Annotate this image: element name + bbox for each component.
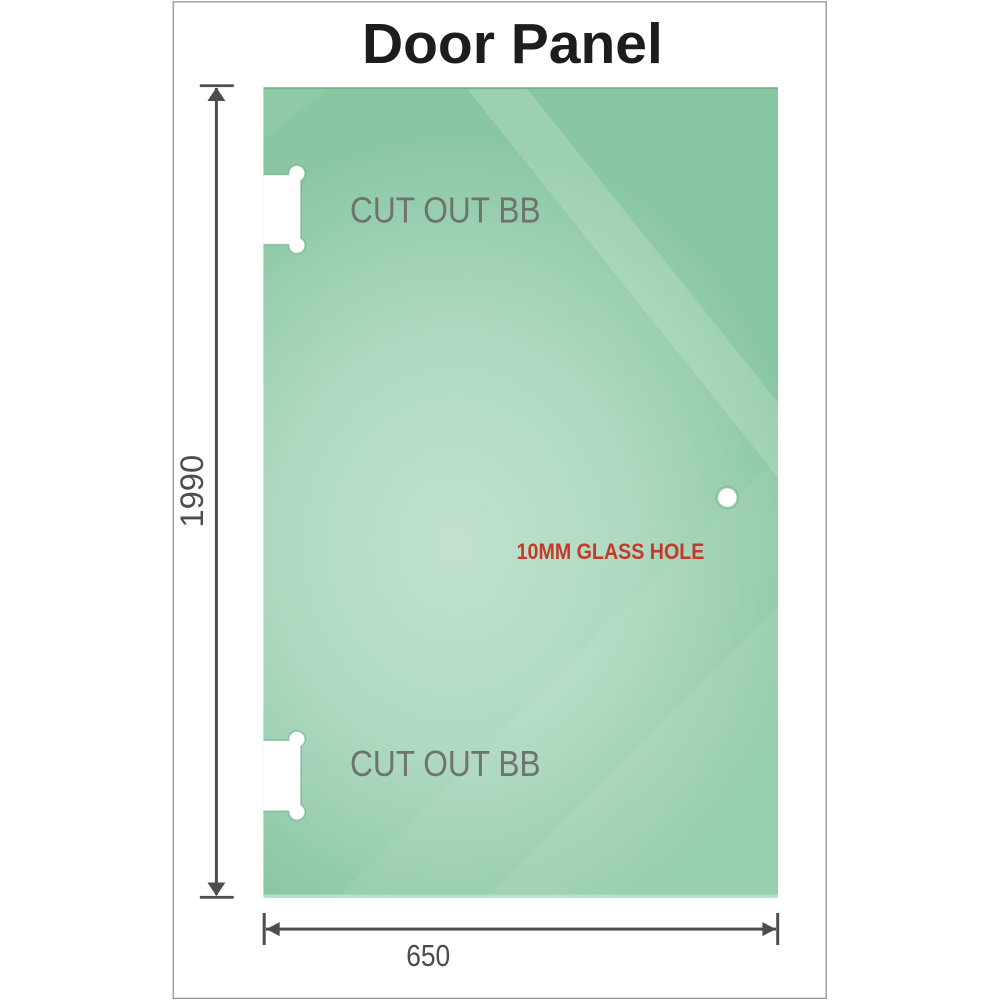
svg-text:Door Panel: Door Panel xyxy=(362,12,663,76)
svg-text:650: 650 xyxy=(406,939,450,973)
svg-text:10MM GLASS HOLE: 10MM GLASS HOLE xyxy=(517,540,705,565)
svg-text:1990: 1990 xyxy=(174,455,210,528)
svg-text:CUT OUT BB: CUT OUT BB xyxy=(350,744,541,784)
svg-text:CUT OUT BB: CUT OUT BB xyxy=(350,191,541,231)
